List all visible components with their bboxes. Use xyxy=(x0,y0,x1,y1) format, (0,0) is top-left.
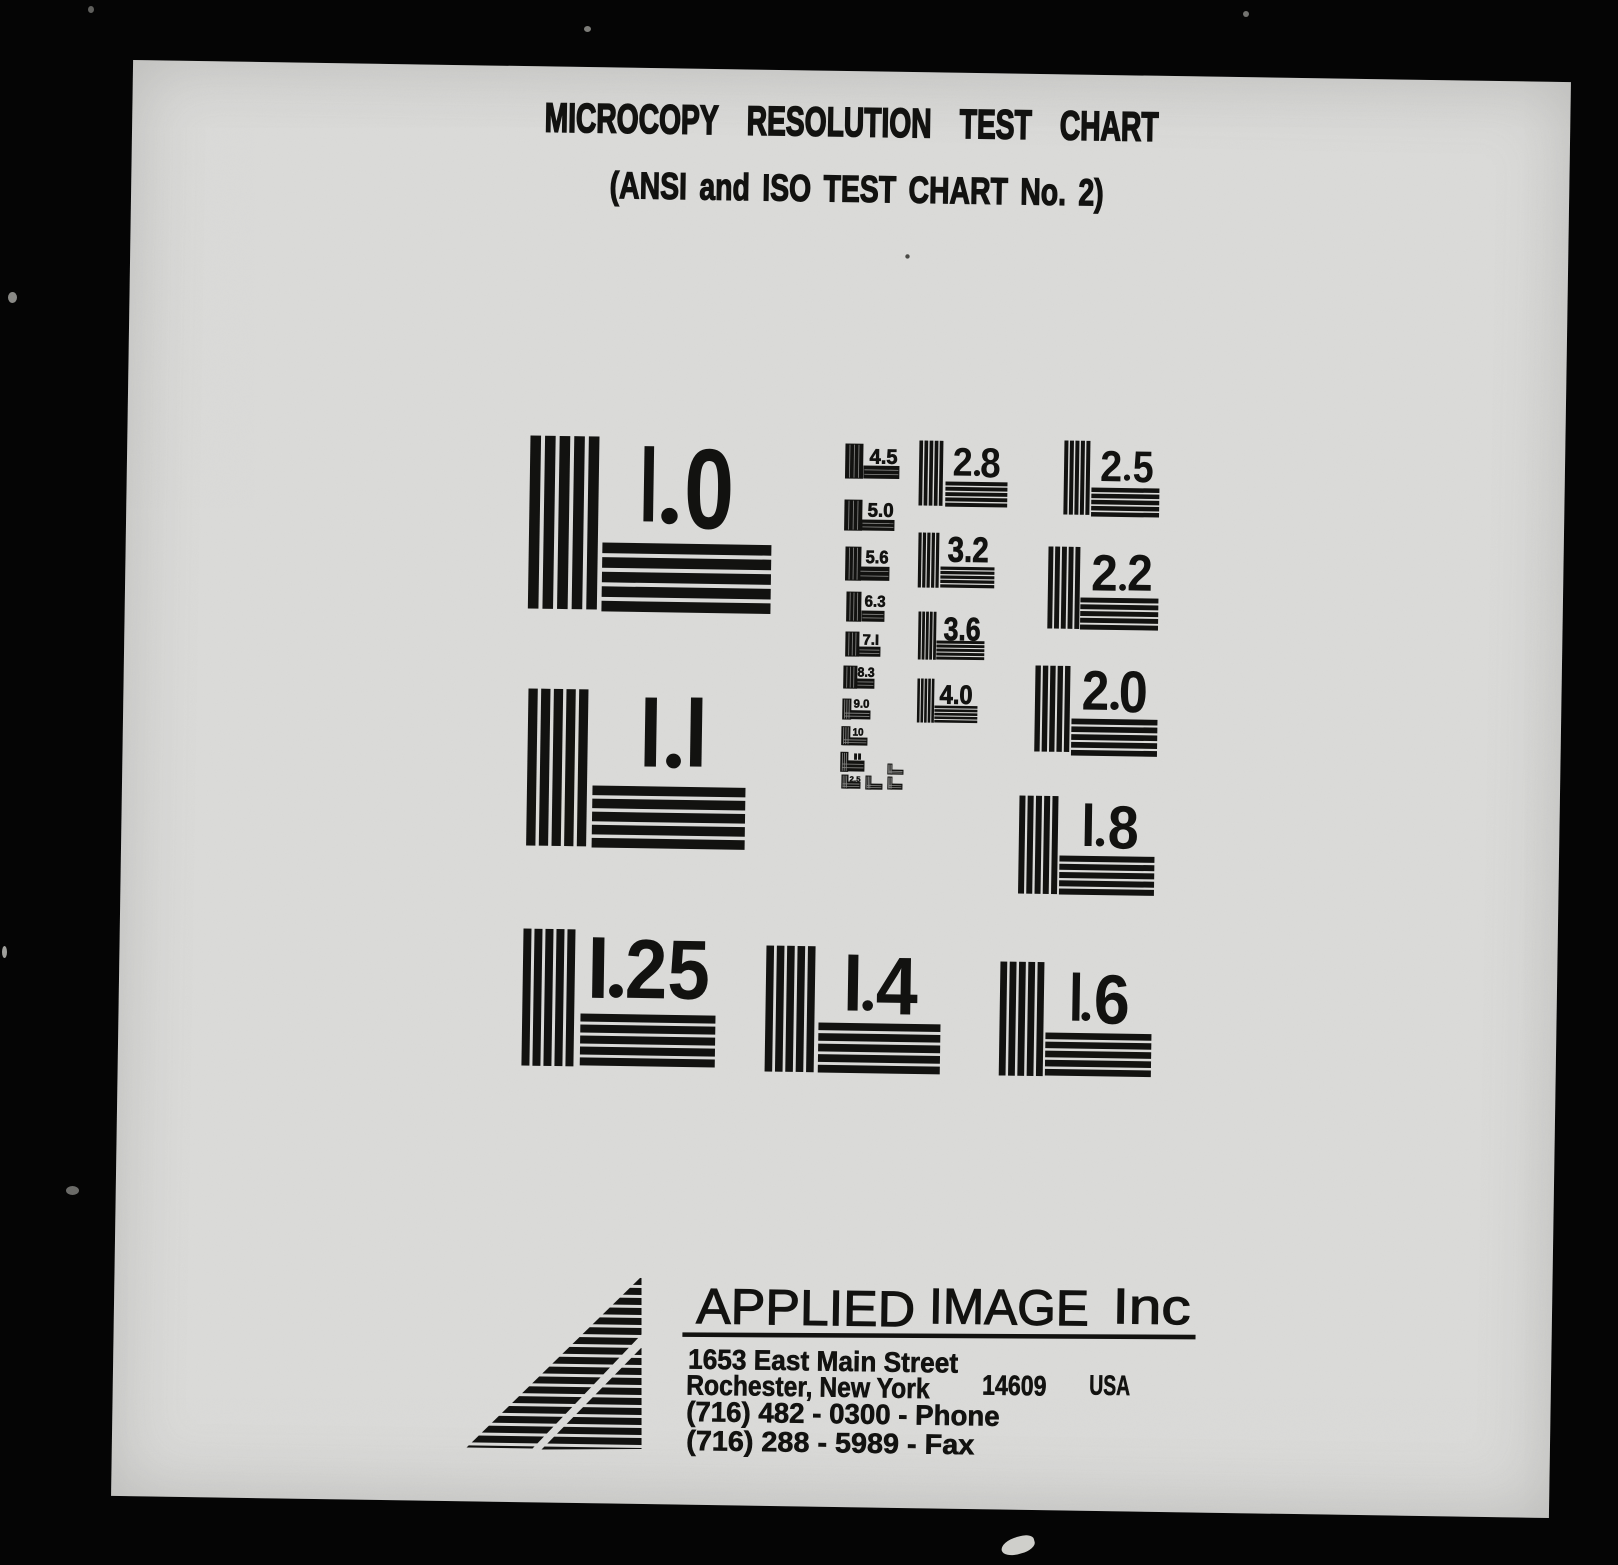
svg-text:2: 2 xyxy=(1099,442,1122,490)
svg-text:MICROCOPY RESOLUTION TEST C: MICROCOPY RESOLUTION TEST CHART xyxy=(544,94,1159,149)
svg-text:2: 2 xyxy=(1126,543,1152,601)
svg-text:USA: USA xyxy=(1089,1369,1130,1401)
svg-text:6: 6 xyxy=(1093,960,1130,1039)
svg-text:IMAGE: IMAGE xyxy=(928,1278,1089,1336)
svg-text:8: 8 xyxy=(1107,793,1139,861)
svg-text:0: 0 xyxy=(1118,658,1148,724)
svg-text:4.5: 4.5 xyxy=(869,445,897,468)
svg-text:Inc: Inc xyxy=(1112,1278,1191,1335)
svg-text:4: 4 xyxy=(875,940,919,1032)
svg-text:4.0: 4.0 xyxy=(939,679,972,710)
svg-text:2: 2 xyxy=(952,440,973,484)
svg-text:(716) 288 - 5989 - Fax: (716) 288 - 5989 - Fax xyxy=(686,1425,975,1460)
svg-text:8: 8 xyxy=(979,439,1000,486)
svg-text:(ANSI and ISO TEST CHART No. 2: (ANSI and ISO TEST CHART No. 2) xyxy=(609,163,1104,213)
svg-text:10: 10 xyxy=(852,726,863,738)
svg-text:6.3: 6.3 xyxy=(864,593,885,610)
svg-text:3.2: 3.2 xyxy=(947,529,989,570)
svg-text:2: 2 xyxy=(1081,658,1109,721)
svg-text:II: II xyxy=(853,751,861,761)
svg-text:0: 0 xyxy=(683,425,735,553)
svg-text:25: 25 xyxy=(624,921,710,1016)
svg-text:2.5: 2.5 xyxy=(849,774,860,783)
svg-text:2: 2 xyxy=(1090,543,1117,601)
svg-text:14609: 14609 xyxy=(981,1369,1046,1401)
svg-text:5.6: 5.6 xyxy=(865,547,888,567)
svg-text:APPLIED: APPLIED xyxy=(695,1278,915,1337)
svg-text:9.0: 9.0 xyxy=(853,696,870,710)
svg-text:8.3: 8.3 xyxy=(857,664,874,679)
svg-text:5.0: 5.0 xyxy=(867,499,893,521)
svg-text:5: 5 xyxy=(1132,442,1154,491)
svg-text:7.I: 7.I xyxy=(862,632,879,648)
